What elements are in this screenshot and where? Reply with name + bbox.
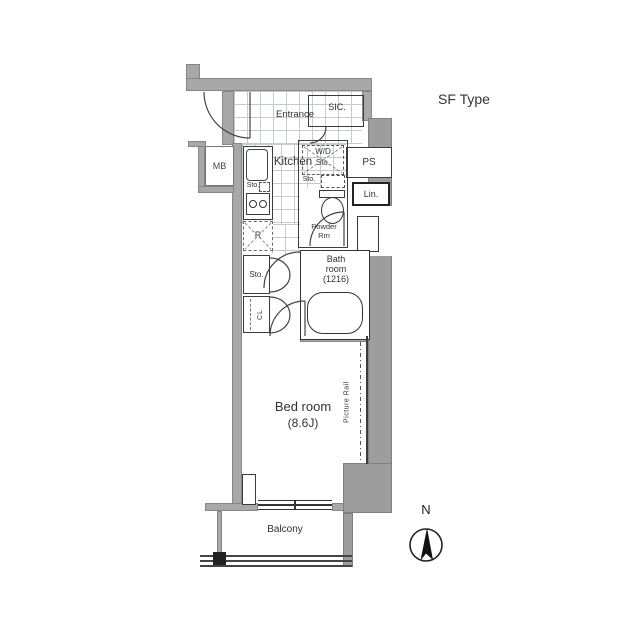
sic-door-arc (310, 127, 326, 143)
floor-plan-canvas: SF Type PS Lin. MB SIC. Entrance Kitchen… (0, 0, 640, 640)
entrance-door-arc (204, 92, 250, 138)
compass-north-label: N (416, 502, 436, 518)
storage-closet-door-arc (270, 258, 290, 292)
compass-needle (421, 528, 434, 561)
cl-closet-door-arc (270, 297, 290, 333)
compass-icon (407, 524, 445, 564)
bedroom-door-arc (270, 301, 305, 336)
powder-door-arc (310, 212, 344, 246)
bath-door-arc (264, 252, 300, 288)
plan-linework (0, 0, 640, 640)
